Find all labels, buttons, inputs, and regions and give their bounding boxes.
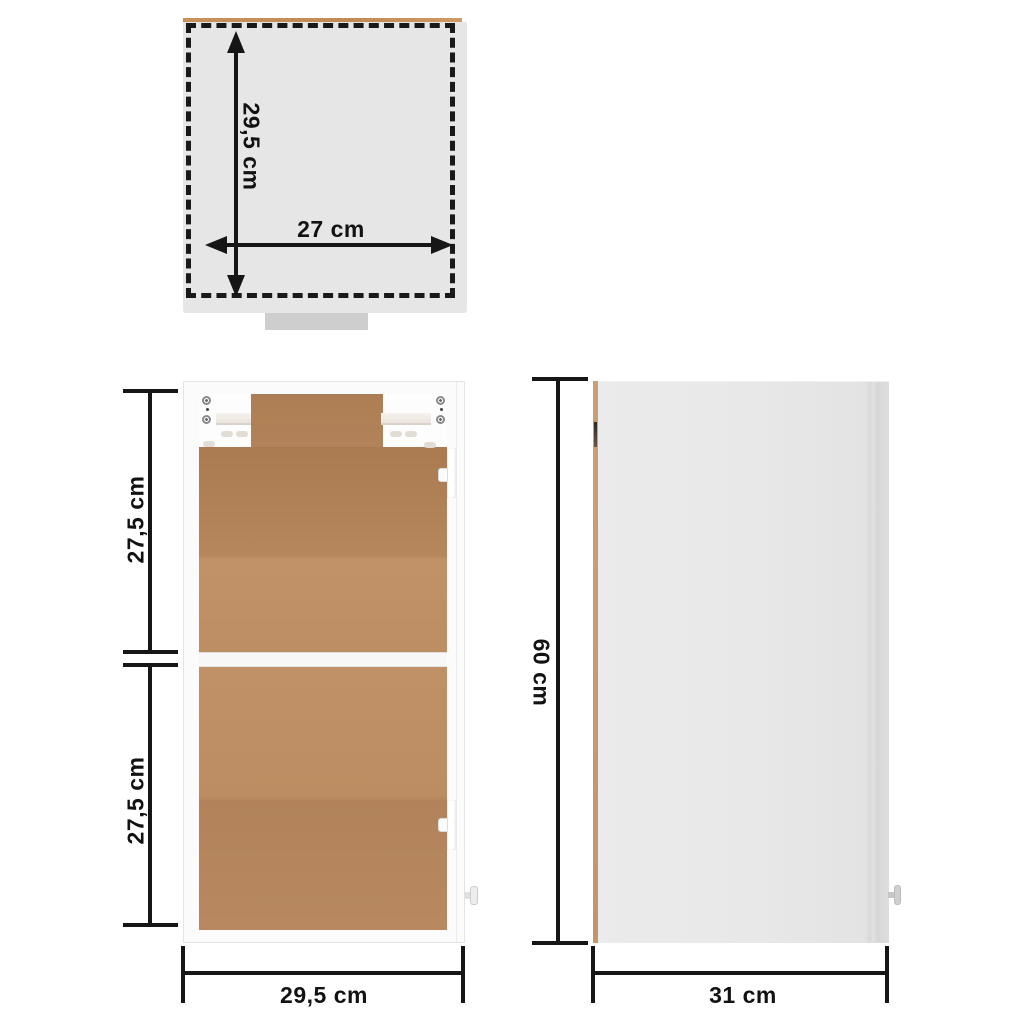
front-door-knob — [470, 886, 478, 905]
lower-hinge — [447, 800, 457, 850]
front-view-shelf — [199, 652, 447, 667]
top-view-dashed-outline — [186, 23, 455, 298]
left-bracket-screw-icon — [202, 415, 211, 424]
lower-hinge-tab — [438, 818, 448, 832]
front-view-back-panel-top-column — [251, 394, 383, 448]
right-bracket-slot — [390, 431, 402, 437]
height-dim-tick-top — [532, 377, 588, 381]
left-bracket-slot — [203, 441, 215, 447]
right-bracket-pin-icon — [440, 408, 443, 411]
left-bracket-slot — [221, 431, 233, 437]
right-bracket-screw-icon — [436, 415, 445, 424]
depth-dim-tick-right — [885, 946, 889, 1003]
side-view-bracket-mark — [594, 422, 597, 447]
height-dim-line — [556, 377, 560, 945]
side-view-panel — [598, 381, 889, 943]
side-door-knob — [894, 885, 901, 905]
left-bracket-slot — [236, 431, 248, 437]
front-width-tick-right — [461, 946, 465, 1003]
front-width-line — [183, 971, 465, 975]
upper-dim-tick-bottom — [123, 650, 178, 654]
product-dimension-diagram: 29,5 cm 27 cm 27,5 cm 27,5 — [0, 0, 1024, 1024]
right-bracket-rail — [381, 413, 431, 425]
height-dim-tick-bottom — [532, 941, 588, 945]
arrowhead-down-icon — [227, 275, 245, 297]
left-bracket-screw-icon — [202, 396, 211, 405]
front-view-lower-compartment — [199, 667, 447, 930]
arrowhead-up-icon — [227, 31, 245, 53]
arrowhead-left-icon — [205, 236, 227, 254]
right-bracket-slot — [424, 442, 436, 448]
front-view-upper-compartment — [199, 447, 447, 652]
left-bracket-pin-icon — [206, 408, 209, 411]
top-view-door-handle-tab — [265, 313, 368, 330]
upper-hinge — [447, 448, 457, 498]
lower-dim-tick-bottom — [123, 923, 178, 927]
depth-dim-line — [593, 971, 887, 975]
left-bracket-rail — [216, 413, 251, 425]
arrowhead-right-icon — [431, 236, 453, 254]
right-bracket-slot — [405, 431, 417, 437]
top-view-width-arrow-line — [224, 243, 434, 247]
right-bracket-screw-icon — [436, 396, 445, 405]
upper-hinge-tab — [438, 468, 448, 482]
